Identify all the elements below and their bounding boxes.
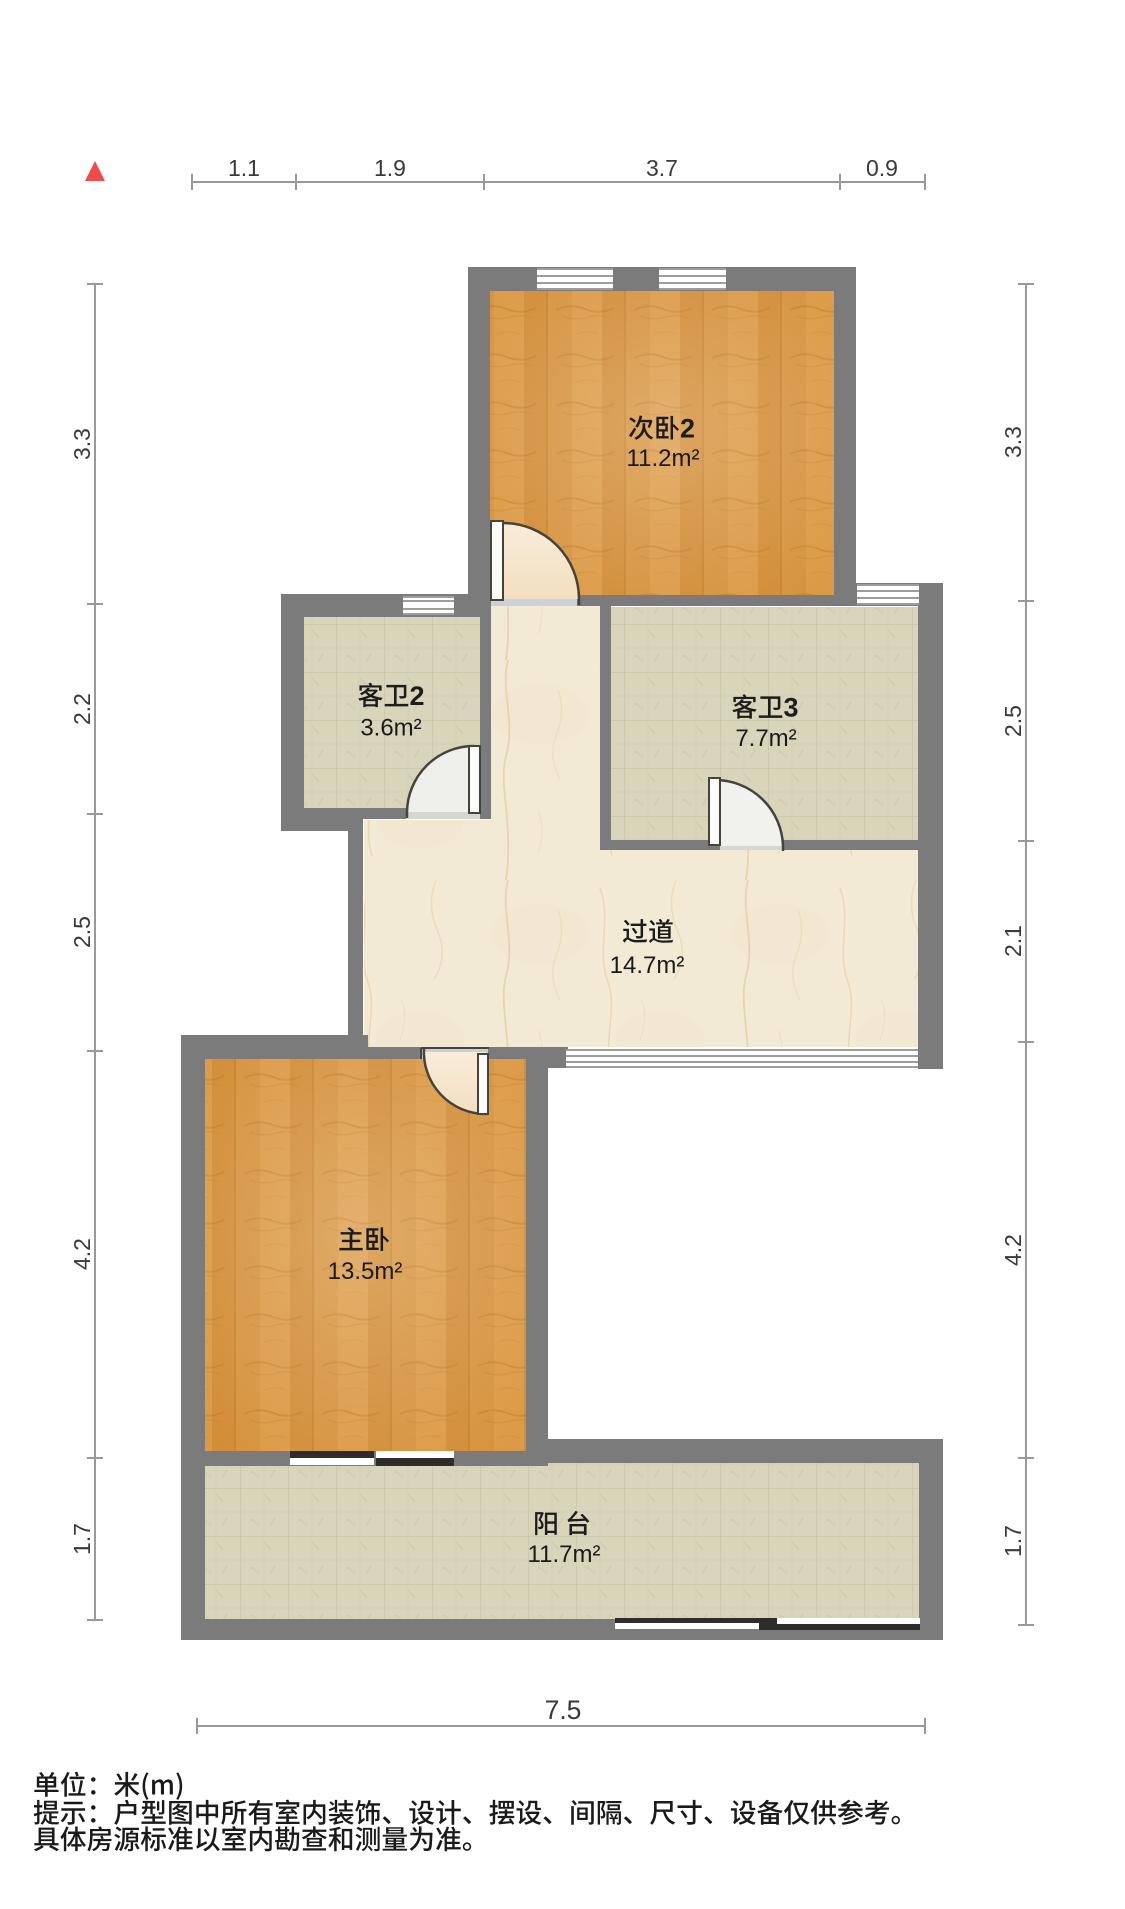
svg-text:1.1: 1.1 (228, 155, 260, 181)
svg-text:4.2: 4.2 (1000, 1234, 1026, 1266)
svg-text:2.5: 2.5 (1000, 705, 1026, 737)
svg-text:13.5m²: 13.5m² (328, 1258, 403, 1285)
svg-text:1.7: 1.7 (1000, 1525, 1026, 1557)
svg-text:2.2: 2.2 (69, 693, 95, 725)
svg-text:4.2: 4.2 (69, 1238, 95, 1270)
svg-text:2.1: 2.1 (1000, 925, 1026, 957)
svg-text:2: 2 (410, 681, 425, 711)
svg-text:14.7m²: 14.7m² (610, 952, 685, 979)
svg-text:11.2m²: 11.2m² (627, 445, 700, 472)
svg-text:0.9: 0.9 (866, 155, 898, 181)
svg-text:11.7m²: 11.7m² (528, 1541, 601, 1568)
svg-text:3.3: 3.3 (69, 428, 95, 460)
svg-text:2: 2 (680, 414, 695, 444)
svg-text:1.9: 1.9 (374, 155, 406, 181)
svg-text:7.5: 7.5 (545, 1695, 582, 1725)
svg-text:7.7m²: 7.7m² (735, 725, 796, 752)
svg-text:2.5: 2.5 (69, 916, 95, 948)
svg-text:3: 3 (784, 693, 799, 723)
svg-text:3.3: 3.3 (1000, 426, 1026, 458)
svg-text:1.7: 1.7 (69, 1523, 95, 1555)
svg-text:3.7: 3.7 (646, 155, 678, 181)
svg-text:3.6m²: 3.6m² (360, 715, 421, 742)
